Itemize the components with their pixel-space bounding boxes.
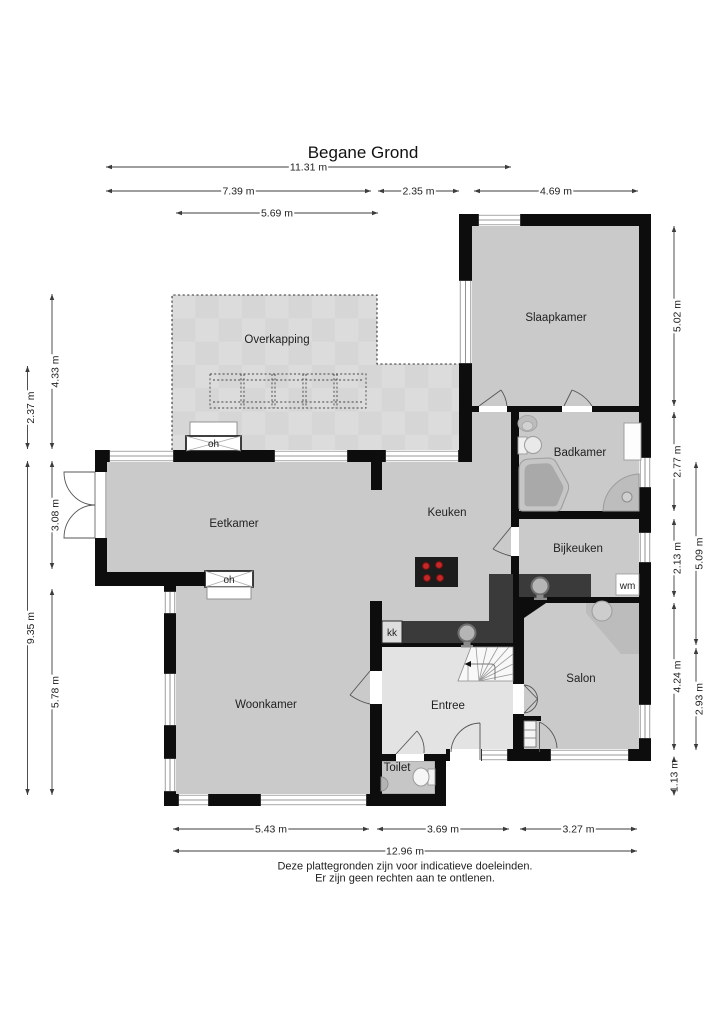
svg-text:5.78 m: 5.78 m — [49, 676, 61, 708]
svg-text:11.31 m: 11.31 m — [290, 162, 327, 174]
svg-text:4.69 m: 4.69 m — [540, 186, 572, 198]
svg-text:kk: kk — [387, 628, 398, 639]
svg-text:5.02 m: 5.02 m — [671, 300, 683, 332]
svg-text:Entree: Entree — [431, 700, 465, 712]
svg-text:3.69 m: 3.69 m — [427, 824, 459, 836]
svg-text:3.08 m: 3.08 m — [49, 499, 61, 531]
svg-text:2.93 m: 2.93 m — [693, 683, 705, 715]
svg-text:5.09 m: 5.09 m — [693, 537, 705, 569]
svg-text:Slaapkamer: Slaapkamer — [525, 312, 587, 324]
svg-text:3.27 m: 3.27 m — [562, 824, 594, 836]
svg-text:5.43 m: 5.43 m — [255, 824, 287, 836]
svg-text:oh: oh — [223, 575, 234, 586]
svg-text:2.35 m: 2.35 m — [402, 186, 434, 198]
svg-text:12.96 m: 12.96 m — [386, 846, 424, 858]
svg-text:Er zijn geen rechten aan te on: Er zijn geen rechten aan te ontlenen. — [315, 873, 495, 885]
svg-text:Woonkamer: Woonkamer — [235, 699, 297, 711]
svg-text:oh: oh — [208, 439, 219, 450]
svg-text:Eetkamer: Eetkamer — [209, 518, 258, 530]
svg-text:9.35 m: 9.35 m — [25, 612, 37, 644]
svg-text:2.77 m: 2.77 m — [671, 445, 683, 477]
svg-text:4.24 m: 4.24 m — [671, 660, 683, 692]
svg-text:Bijkeuken: Bijkeuken — [553, 543, 603, 555]
svg-text:wm: wm — [619, 581, 636, 592]
svg-text:Overkapping: Overkapping — [244, 334, 309, 346]
svg-text:2.37 m: 2.37 m — [25, 391, 37, 423]
svg-text:7.39 m: 7.39 m — [222, 186, 254, 198]
svg-text:Badkamer: Badkamer — [554, 447, 607, 459]
svg-text:5.69 m: 5.69 m — [261, 208, 293, 220]
svg-text:Salon: Salon — [566, 673, 595, 685]
svg-text:2.13 m: 2.13 m — [671, 542, 683, 574]
svg-text:4.33 m: 4.33 m — [49, 355, 61, 387]
svg-text:Deze plattegronden zijn voor i: Deze plattegronden zijn voor indicatieve… — [277, 861, 532, 873]
svg-text:Keuken: Keuken — [427, 507, 466, 519]
svg-text:Begane Grond: Begane Grond — [308, 143, 419, 162]
svg-text:1.13 m: 1.13 m — [669, 760, 681, 792]
svg-text:Toilet: Toilet — [384, 762, 412, 774]
